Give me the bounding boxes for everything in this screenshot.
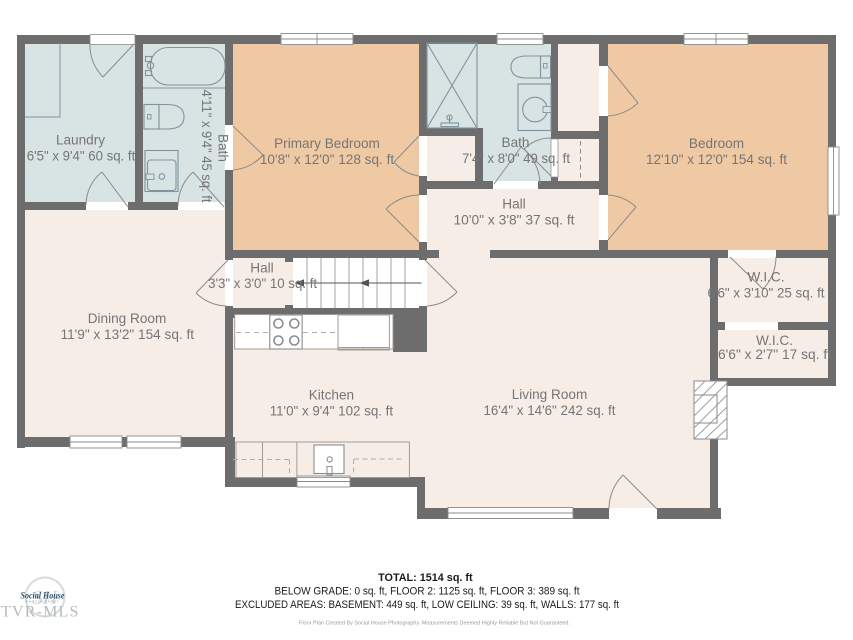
svg-text:Primary Bedroom: Primary Bedroom <box>274 136 380 151</box>
svg-text:Living Room: Living Room <box>512 387 588 402</box>
svg-text:Kitchen: Kitchen <box>309 387 354 402</box>
svg-text:12'10" x 12'0" 154 sq. ft: 12'10" x 12'0" 154 sq. ft <box>646 152 787 167</box>
svg-text:Hall: Hall <box>250 260 273 275</box>
svg-text:Bedroom: Bedroom <box>689 136 744 151</box>
svg-text:Laundry: Laundry <box>56 132 105 147</box>
svg-text:Floor Plan Created By Social H: Floor Plan Created By Social House Photo… <box>299 621 570 627</box>
svg-text:Bath: Bath <box>216 134 231 162</box>
svg-text:BELOW GRADE: 0 sq. ft, FLOOR 2: BELOW GRADE: 0 sq. ft, FLOOR 2: 1125 sq.… <box>275 586 580 598</box>
svg-text:TOTAL: 1514 sq. ft: TOTAL: 1514 sq. ft <box>378 572 473 584</box>
svg-text:10'8" x 12'0" 128 sq. ft: 10'8" x 12'0" 128 sq. ft <box>260 152 395 167</box>
svg-text:Hall: Hall <box>502 197 525 212</box>
svg-text:4'11" x 9'4" 45 sq. ft: 4'11" x 9'4" 45 sq. ft <box>199 90 214 203</box>
svg-text:EXCLUDED AREAS: BASEMENT: 449: EXCLUDED AREAS: BASEMENT: 449 sq. ft, LO… <box>235 599 619 611</box>
svg-text:TVR-MLS: TVR-MLS <box>1 604 80 621</box>
svg-text:3'3" x 3'0" 10 sq. ft: 3'3" x 3'0" 10 sq. ft <box>208 276 317 291</box>
svg-text:10'0" x 3'8" 37 sq. ft: 10'0" x 3'8" 37 sq. ft <box>454 213 575 228</box>
svg-text:Bath: Bath <box>502 135 530 150</box>
svg-text:6'6" x 2'7" 17 sq. ft: 6'6" x 2'7" 17 sq. ft <box>718 347 831 362</box>
svg-text:11'0" x 9'4" 102 sq. ft: 11'0" x 9'4" 102 sq. ft <box>270 403 394 418</box>
svg-text:W.I.C.: W.I.C. <box>756 333 793 348</box>
svg-text:7'4" x 8'0" 49 sq. ft: 7'4" x 8'0" 49 sq. ft <box>462 151 570 166</box>
svg-text:16'4" x 14'6" 242 sq. ft: 16'4" x 14'6" 242 sq. ft <box>484 403 616 418</box>
svg-text:W.I.C.: W.I.C. <box>747 270 784 285</box>
svg-text:11'9" x 13'2" 154 sq. ft: 11'9" x 13'2" 154 sq. ft <box>61 327 195 342</box>
svg-text:6'6" x 3'10" 25 sq. ft: 6'6" x 3'10" 25 sq. ft <box>708 286 825 301</box>
svg-text:Dining Room: Dining Room <box>88 311 167 326</box>
svg-text:6'5" x 9'4" 60 sq. ft: 6'5" x 9'4" 60 sq. ft <box>27 148 136 163</box>
